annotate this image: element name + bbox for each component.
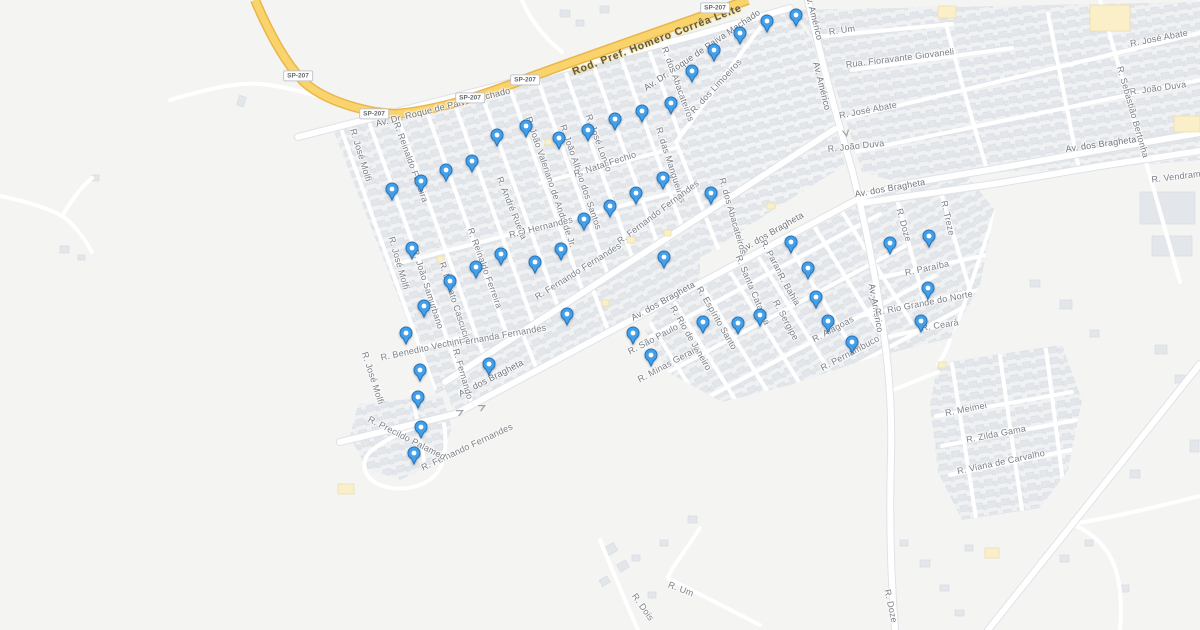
street-label: R. Natal Fechio: [573, 149, 638, 179]
map-pin[interactable]: [469, 260, 483, 279]
map-overlay: Rod. Pref. Homero Corrêa LeiteAv. Dr. Ro…: [0, 0, 1200, 630]
map-pin[interactable]: [922, 229, 936, 248]
route-shield-sp207: SP-207: [510, 74, 540, 85]
street-label: R. Doze: [895, 207, 914, 242]
street-label: R. Doze: [883, 588, 900, 623]
street-label: R. dos Abacateiros: [717, 177, 748, 256]
street-label: R. Fernando Fernandes: [420, 421, 515, 472]
map-pin[interactable]: [664, 96, 678, 115]
street-label: R. Paraíba: [904, 258, 950, 277]
route-shield-sp207: SP-207: [359, 108, 389, 119]
street-label: Rua. Fioravante Giovaneli: [845, 46, 954, 69]
map-pin[interactable]: [644, 348, 658, 367]
map-pin[interactable]: [552, 131, 566, 150]
map-pin[interactable]: [405, 241, 419, 260]
map-viewport[interactable]: Rod. Pref. Homero Corrêa LeiteAv. Dr. Ro…: [0, 0, 1200, 630]
map-pin[interactable]: [414, 420, 428, 439]
street-label: R. das Mangueiras: [654, 126, 688, 204]
map-pin[interactable]: [577, 212, 591, 231]
street-label: Av. dos Bragheta: [1065, 134, 1137, 154]
street-label: R. João Duva: [1129, 79, 1187, 97]
street-label: R. José Abate: [1129, 27, 1188, 48]
map-pin[interactable]: [385, 182, 399, 201]
map-pin[interactable]: [733, 26, 747, 45]
street-label: R. Fernando: [451, 348, 475, 401]
map-pin[interactable]: [554, 242, 568, 261]
street-label: R. Bahia: [776, 271, 803, 307]
street-label: Av. Dr. Roque de Paiva Machado: [375, 85, 512, 128]
map-pin[interactable]: [490, 128, 504, 147]
map-pin[interactable]: [760, 14, 774, 33]
map-pin[interactable]: [883, 236, 897, 255]
map-pin[interactable]: [407, 446, 421, 465]
map-pin[interactable]: [528, 255, 542, 274]
map-pin[interactable]: [845, 335, 859, 354]
map-pin[interactable]: [801, 261, 815, 280]
street-label: R. Dois: [630, 591, 656, 622]
map-pin[interactable]: [417, 299, 431, 318]
street-label: R. José Molfi: [360, 350, 386, 405]
map-pin[interactable]: [809, 290, 823, 309]
street-label: R. Fernanda Fernandes: [447, 322, 547, 349]
street-label: Av. Américo: [811, 61, 833, 111]
map-pin[interactable]: [581, 123, 595, 142]
map-pin[interactable]: [704, 186, 718, 205]
route-shield-sp207: SP-207: [700, 2, 730, 13]
map-pin[interactable]: [439, 163, 453, 182]
map-pin[interactable]: [399, 326, 413, 345]
street-label: R. Benedito Vechini: [380, 336, 463, 363]
street-label: R. Vendramim: [1151, 167, 1200, 184]
map-pin[interactable]: [753, 308, 767, 327]
map-pin[interactable]: [657, 250, 671, 269]
map-pin[interactable]: [707, 43, 721, 62]
street-label: R. J Hernandes: [508, 214, 574, 240]
street-label: R. José Abate: [838, 99, 897, 120]
map-pin[interactable]: [603, 199, 617, 218]
highway-label: Rod. Pref. Homero Corrêa Leite: [571, 2, 744, 78]
map-pin[interactable]: [413, 363, 427, 382]
map-pin[interactable]: [914, 314, 928, 333]
map-pin[interactable]: [789, 8, 803, 27]
route-shield-sp207: SP-207: [283, 70, 313, 81]
map-pin[interactable]: [519, 119, 533, 138]
map-pin[interactable]: [656, 171, 670, 190]
map-pin[interactable]: [696, 315, 710, 334]
street-label: R. André Rueda: [495, 175, 529, 241]
map-pin[interactable]: [685, 64, 699, 83]
map-pin[interactable]: [635, 104, 649, 123]
street-label: R. Fernando Fernandes: [533, 240, 623, 301]
map-pin[interactable]: [411, 390, 425, 409]
map-pin[interactable]: [414, 174, 428, 193]
map-pin[interactable]: [921, 281, 935, 300]
street-label: Av. dos Bragheta: [629, 279, 696, 322]
street-label: Av. Américo: [803, 0, 825, 41]
map-pin[interactable]: [821, 314, 835, 333]
street-label: R. João Duva: [827, 138, 885, 154]
street-label: R. Viana de Carvalho: [956, 448, 1046, 476]
street-label: R. Um: [667, 580, 695, 599]
map-pin[interactable]: [731, 316, 745, 335]
map-pin[interactable]: [784, 235, 798, 254]
street-label: R. Sergipe: [771, 298, 801, 342]
street-label: R. Um: [828, 23, 856, 37]
street-label: Av. Dr. Roque de Paiva Machado: [642, 7, 762, 93]
map-pin[interactable]: [560, 307, 574, 326]
map-pin[interactable]: [465, 154, 479, 173]
street-label: R. Meimei: [944, 400, 987, 418]
route-shield-sp207: SP-207: [455, 92, 485, 103]
map-pin[interactable]: [626, 326, 640, 345]
street-label: R. Treze: [939, 200, 957, 237]
street-label: R. Sebastião Bertonha: [1115, 65, 1151, 159]
map-pin[interactable]: [494, 247, 508, 266]
map-pin[interactable]: [608, 112, 622, 131]
map-pin[interactable]: [482, 357, 496, 376]
street-label: Av. dos Bragheta: [854, 177, 926, 199]
street-label: Av. Américo: [867, 283, 885, 333]
street-label: R. Zilda Gama: [965, 423, 1026, 444]
map-pin[interactable]: [443, 274, 457, 293]
street-label: R. José Molfi: [348, 127, 374, 182]
map-pin[interactable]: [629, 186, 643, 205]
